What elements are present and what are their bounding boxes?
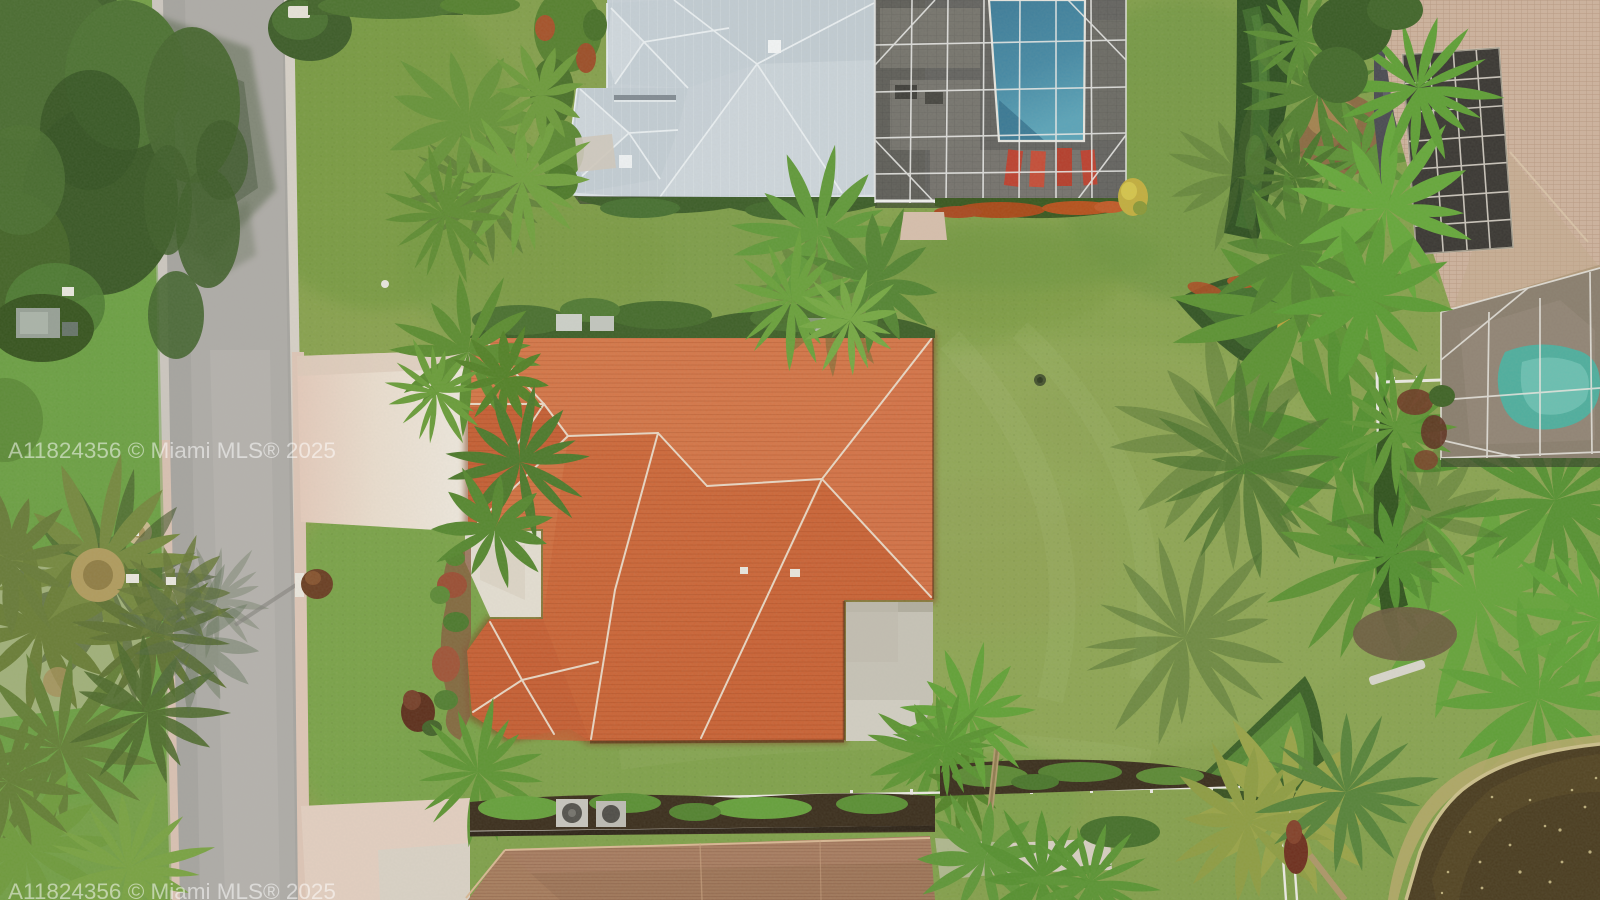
svg-text:A11824356 © Miami MLS® 2025: A11824356 © Miami MLS® 2025 — [8, 438, 336, 463]
svg-text:A11824356 © Miami MLS® 2025: A11824356 © Miami MLS® 2025 — [8, 879, 336, 900]
